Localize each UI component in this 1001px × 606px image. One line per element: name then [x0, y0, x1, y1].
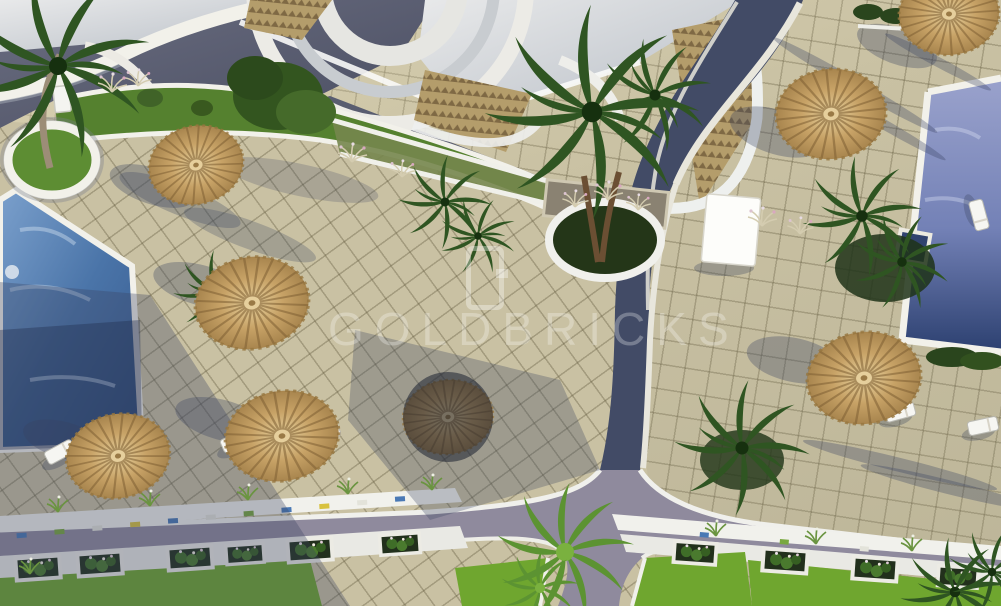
- planter-circle-top-left: [2, 119, 102, 201]
- aerial-resort-render: GOLDBRICKS: [0, 0, 1001, 606]
- render-shapes: [0, 0, 1001, 606]
